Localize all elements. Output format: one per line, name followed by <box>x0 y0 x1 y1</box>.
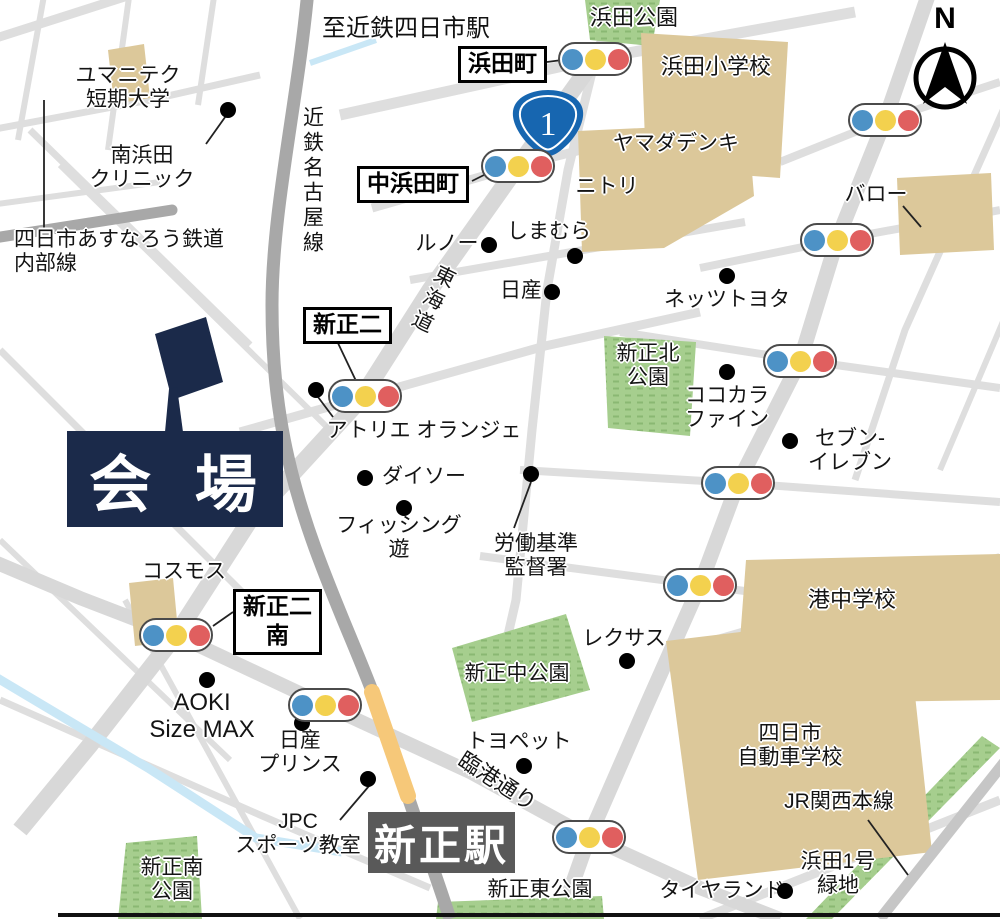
traffic-light-icon <box>701 466 775 500</box>
jr-kansai-line-label: JR関西本線 <box>784 790 894 814</box>
intersection-box-nakahamadacho: 中浜田町 <box>357 166 469 203</box>
shinsho-station-box: 新正駅 <box>368 812 515 873</box>
roudou-kijun-label: 労働基準監督署 <box>494 532 578 579</box>
nissan-dot <box>544 284 560 300</box>
yumaniteku-college-label: ユマニテク短期大学 <box>76 64 181 111</box>
intersection-box-shinsho-ni-minami: 新正二南 <box>233 589 322 655</box>
hamada-elementary-label: 浜田小学校 <box>661 55 771 80</box>
nitori-label: ニトリ <box>576 175 639 199</box>
traffic-light-icon <box>848 103 922 137</box>
daiso-label: ダイソー <box>382 465 466 489</box>
seven-eleven-dot <box>782 433 798 449</box>
shinsho-naka-park-label: 新正中公園 <box>465 662 570 686</box>
traffic-light-icon <box>288 688 362 722</box>
nissan-prince-label: 日産プリンス <box>258 729 342 776</box>
lexus-label: レクサス <box>582 627 666 651</box>
traffic-light-icon <box>763 344 837 378</box>
valor-label: バロー <box>845 183 908 207</box>
seven-eleven-label: セブン-イレブン <box>808 427 892 474</box>
renault-label: ルノー <box>416 232 479 256</box>
shinsho-minami-park-label: 新正南公園 <box>141 856 204 903</box>
traffic-light-icon <box>328 379 402 413</box>
traffic-light-icon <box>800 223 874 257</box>
shimamura-label: しまむら <box>507 220 591 244</box>
minamihamada-clinic-dot <box>220 102 236 118</box>
traffic-light-icon <box>552 820 626 854</box>
compass-icon <box>908 30 982 114</box>
aoki-sizemax-label: AOKISize MAX <box>149 690 254 744</box>
intersection-box-shinsho-ni: 新正二 <box>303 307 392 344</box>
hamada1-ryokuchi-label: 浜田1号緑地 <box>801 850 876 897</box>
venue-building <box>155 317 223 432</box>
route-1-number: 1 <box>540 106 557 144</box>
minamihamada-clinic-label: 南浜田クリニック <box>90 144 195 191</box>
cocokara-fine-label: ココカラファイン <box>685 384 769 431</box>
access-map: 1 N 至近鉄四日市駅 会 場 新正駅 浜田公園浜田小学校ユマニテク短期大学南浜… <box>0 0 1000 919</box>
daiso-dot <box>357 470 373 486</box>
traffic-light-icon <box>481 149 555 183</box>
yamada-denki-label: ヤマダデンキ <box>613 132 739 156</box>
fishing-yu-label: フィッシング遊 <box>336 514 462 561</box>
intersection-box-hamadacho: 浜田町 <box>458 46 547 83</box>
cocokara-dot <box>719 364 735 380</box>
netz-toyota-label: ネッツトヨタ <box>664 288 790 312</box>
atelier-orange-label: アトリエ オランジェ <box>327 419 522 443</box>
fishing-dot <box>396 500 412 516</box>
shinsho-higashi-park-label: 新正東公園 <box>488 878 593 902</box>
nissan-label: 日産 <box>500 279 542 303</box>
yokkaichi-driving-school-label: 四日市自動車学校 <box>738 722 843 769</box>
tireland-label: タイヤランド <box>659 879 784 903</box>
cosmos-label: コスモス <box>142 560 226 584</box>
jpc-sports-label: JPCスポーツ教室 <box>235 810 361 857</box>
venue-label-box: 会 場 <box>67 431 283 527</box>
netz-toyota-dot <box>719 268 735 284</box>
tireland-dot <box>777 883 793 899</box>
roudou-dot <box>523 466 539 482</box>
renault-dot <box>481 237 497 253</box>
atelier-dot <box>308 382 324 398</box>
lexus-dot <box>619 653 635 669</box>
kintetsu-nagoya-line-label: 近鉄名古屋線 <box>300 106 324 256</box>
aoki-dot <box>199 672 215 688</box>
traffic-light-icon <box>663 568 737 602</box>
asunarou-line-label: 四日市あすなろう鉄道内部線 <box>14 228 224 275</box>
traffic-light-icon <box>558 42 632 76</box>
minato-junior-high-label: 港中学校 <box>808 588 896 613</box>
toyopet-dot <box>516 758 532 774</box>
compass-north-label: N <box>934 2 956 36</box>
shimamura-dot <box>567 248 583 264</box>
to-kintetsu-yokkaichi-note: 至近鉄四日市駅 <box>322 8 490 43</box>
hamada-park-label: 浜田公園 <box>590 6 678 31</box>
traffic-light-icon <box>139 618 213 652</box>
shinsho-kita-park-label: 新正北公園 <box>617 342 680 389</box>
toyopet-label: トヨペット <box>467 730 572 754</box>
jpc-dot <box>360 771 376 787</box>
